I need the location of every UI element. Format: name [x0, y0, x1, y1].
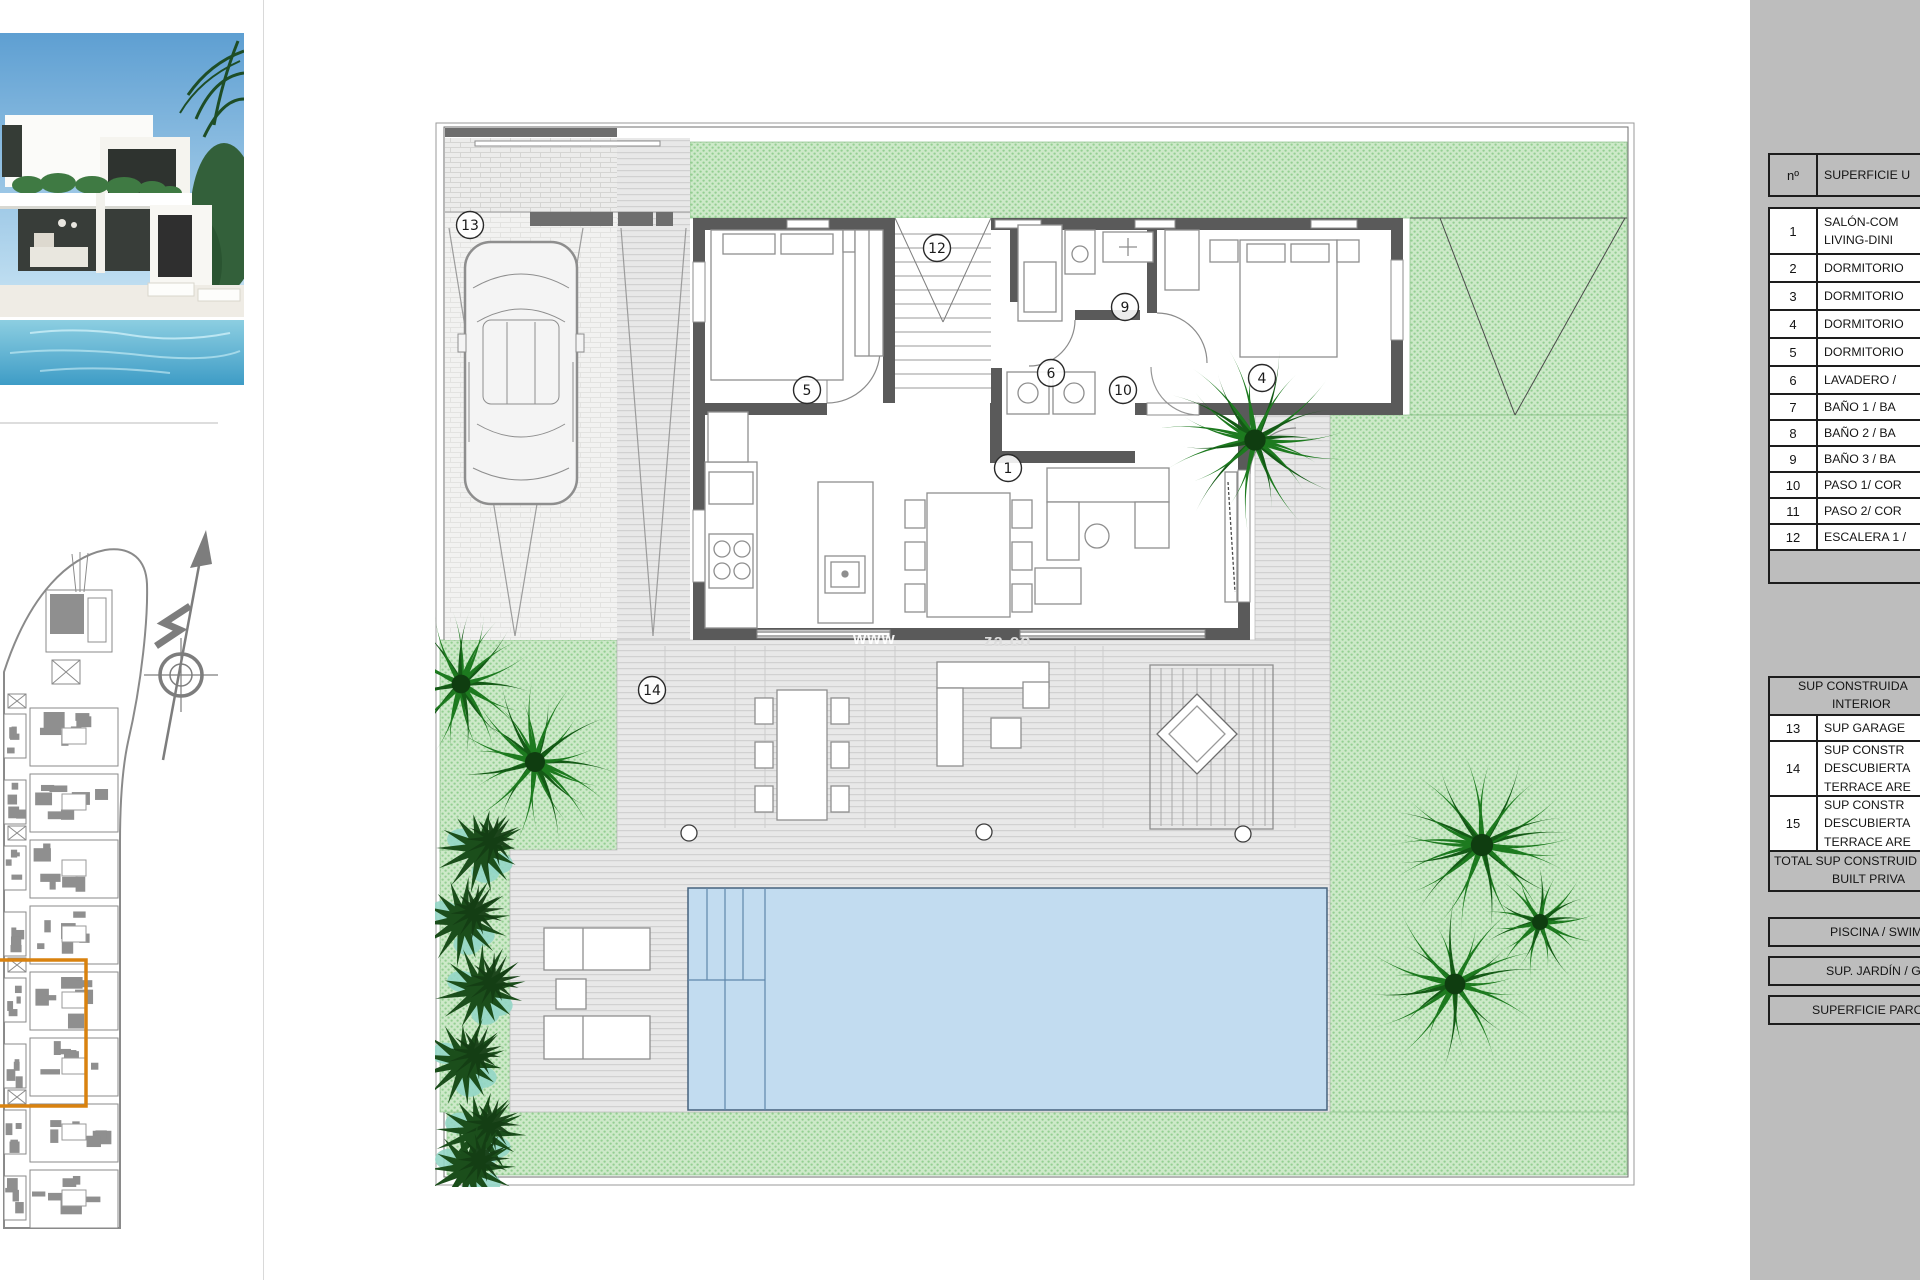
- parked-car: [458, 242, 584, 504]
- table-row: 6LAVADERO /: [1770, 365, 1920, 393]
- table-row: 4DORMITORIO: [1770, 309, 1920, 337]
- row-name: PASO 2/ COR: [1818, 500, 1902, 522]
- row-number: 5: [1770, 339, 1818, 365]
- row-number: 4: [1770, 311, 1818, 337]
- main-floor-plan: 1456910121314 www za.co: [435, 122, 1635, 1187]
- outdoor-dining: [755, 690, 849, 820]
- table-row: 5DORMITORIO: [1770, 337, 1920, 365]
- area-table-panel: nºSUPERFICIE U1SALÓN-COMLIVING-DINI2DORM…: [1750, 0, 1920, 1280]
- row-number: 2: [1770, 255, 1818, 281]
- sheet-margin-line: [263, 0, 264, 1280]
- floor-plan-drawing: 1456910121314: [435, 122, 1635, 1187]
- table-row: 1SALÓN-COMLIVING-DINI: [1770, 209, 1920, 253]
- table-row: 14SUP CONSTRDESCUBIERTATERRACE ARE: [1770, 740, 1920, 795]
- header-num: nº: [1770, 155, 1818, 195]
- photo-pool-deck: [0, 283, 244, 385]
- garden-row: SUP. JARDÍN / G: [1768, 956, 1920, 986]
- room-label-number: 4: [1258, 371, 1267, 387]
- row-number: 6: [1770, 367, 1818, 393]
- pergola-post: [1235, 826, 1251, 842]
- subtotal-band: [1770, 549, 1920, 582]
- row-name: DORMITORIO: [1818, 313, 1904, 335]
- plot-row: SUPERFICIE PARCE: [1768, 995, 1920, 1025]
- room-label-number: 12: [928, 241, 946, 257]
- room-label-number: 14: [643, 683, 661, 699]
- row-number: 13: [1770, 716, 1818, 740]
- room-label-number: 9: [1121, 300, 1130, 316]
- row-name: PASO 1/ COR: [1818, 474, 1902, 496]
- row-number: 11: [1770, 499, 1818, 523]
- room-label-number: 13: [461, 218, 479, 234]
- villa-photo: [0, 33, 244, 385]
- tv-panel: [1225, 472, 1237, 602]
- kitchen-island: [818, 482, 873, 623]
- row-number: 8: [1770, 421, 1818, 445]
- built-block: SUP CONSTRUIDAINTERIOR13SUP GARAGE14SUP …: [1768, 676, 1920, 892]
- row-number: 10: [1770, 473, 1818, 497]
- table-row: 12ESCALERA 1 /: [1770, 523, 1920, 549]
- room-label-number: 1: [1004, 461, 1013, 477]
- row-number: 14: [1770, 742, 1818, 795]
- swimming-pool: [688, 888, 1327, 1110]
- room-label-number: 10: [1114, 383, 1132, 399]
- table-header: nºSUPERFICIE U: [1768, 153, 1920, 197]
- pool-row: PISCINA / SWIM: [1768, 917, 1920, 947]
- row-number: 15: [1770, 797, 1818, 850]
- pergola-post: [681, 825, 697, 841]
- row-name: DORMITORIO: [1818, 285, 1904, 307]
- row-number: 9: [1770, 447, 1818, 471]
- photo-villa: [0, 115, 212, 293]
- row-name: BAÑO 1 / BA: [1818, 396, 1896, 418]
- carport-wall: [530, 212, 673, 226]
- row-name: DORMITORIO: [1818, 341, 1904, 363]
- row-number: 12: [1770, 525, 1818, 549]
- rooms-block: 1SALÓN-COMLIVING-DINI2DORMITORIO3DORMITO…: [1768, 207, 1920, 584]
- header-name: SUPERFICIE U: [1818, 164, 1910, 186]
- pergola-post: [976, 824, 992, 840]
- entrance-gate: [445, 128, 617, 137]
- room-label-number: 5: [803, 383, 812, 399]
- row-number: 7: [1770, 395, 1818, 419]
- row-name: DORMITORIO: [1818, 257, 1904, 279]
- table-row: 2DORMITORIO: [1770, 253, 1920, 281]
- dining-table: [905, 493, 1032, 617]
- row-name: SUP CONSTRDESCUBIERTATERRACE ARE: [1818, 794, 1911, 853]
- row-number: 1: [1770, 209, 1818, 253]
- row-name: SUP CONSTRDESCUBIERTATERRACE ARE: [1818, 739, 1911, 798]
- table-row: 8BAÑO 2 / BA: [1770, 419, 1920, 445]
- row-name: BAÑO 2 / BA: [1818, 422, 1896, 444]
- table-row: 11PASO 2/ COR: [1770, 497, 1920, 523]
- row-name: SUP GARAGE: [1818, 717, 1905, 739]
- row-name: ESCALERA 1 /: [1818, 526, 1906, 548]
- north-compass: [144, 530, 218, 760]
- row-name: BAÑO 3 / BA: [1818, 448, 1896, 470]
- site-plan: [0, 422, 230, 1234]
- room-label-number: 6: [1047, 366, 1056, 382]
- table-row: 9BAÑO 3 / BA: [1770, 445, 1920, 471]
- table-row: 7BAÑO 1 / BA: [1770, 393, 1920, 419]
- row-number: 3: [1770, 283, 1818, 309]
- row-name: SALÓN-COMLIVING-DINI: [1818, 211, 1898, 252]
- table-row: 15SUP CONSTRDESCUBIERTATERRACE ARE: [1770, 795, 1920, 850]
- table-row: 10PASO 1/ COR: [1770, 471, 1920, 497]
- table-row: 13SUP GARAGE: [1770, 714, 1920, 740]
- gate-rail: [475, 141, 660, 146]
- table-row: 3DORMITORIO: [1770, 281, 1920, 309]
- row-name: LAVADERO /: [1818, 369, 1896, 391]
